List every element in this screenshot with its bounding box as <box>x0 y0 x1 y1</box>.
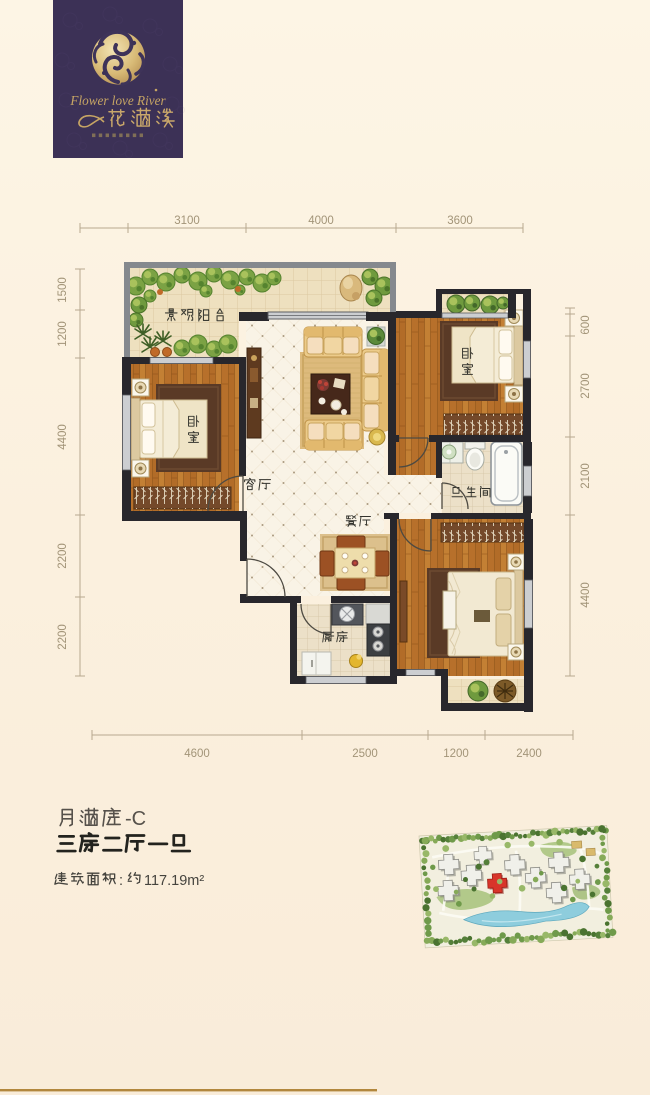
svg-text:4000: 4000 <box>308 215 334 227</box>
svg-text:2700: 2700 <box>580 373 592 399</box>
svg-text:4400: 4400 <box>57 424 69 450</box>
svg-text:2500: 2500 <box>352 748 378 760</box>
svg-text:2400: 2400 <box>516 748 542 760</box>
svg-text:-C: -C <box>125 808 146 830</box>
svg-text:4400: 4400 <box>580 582 592 608</box>
svg-text::: : <box>119 873 123 889</box>
svg-text:3600: 3600 <box>447 215 473 227</box>
svg-text:2200: 2200 <box>57 543 69 569</box>
svg-text:1200: 1200 <box>443 748 469 760</box>
svg-text:3100: 3100 <box>174 215 200 227</box>
svg-text:600: 600 <box>580 315 592 334</box>
svg-text:Flower love River: Flower love River <box>69 93 166 108</box>
svg-text:2100: 2100 <box>580 463 592 489</box>
svg-text:1200: 1200 <box>57 321 69 347</box>
svg-text:2200: 2200 <box>57 624 69 650</box>
svg-text:117.19m²: 117.19m² <box>144 873 204 889</box>
svg-text:4600: 4600 <box>184 748 210 760</box>
svg-text:1500: 1500 <box>57 277 69 303</box>
